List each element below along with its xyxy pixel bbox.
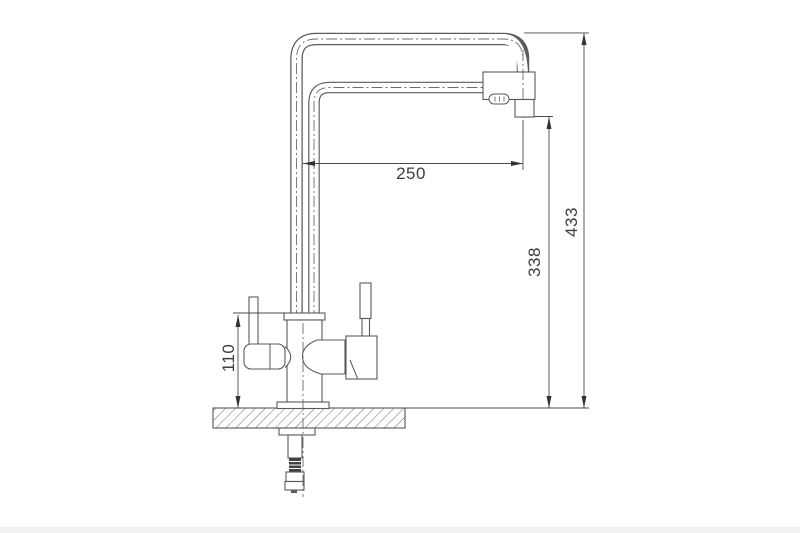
mounting-washer	[279, 428, 315, 435]
countertop-section	[213, 408, 405, 428]
shank-tube	[288, 435, 302, 458]
right-handle-lever	[360, 283, 371, 319]
left-lever-handle	[244, 297, 291, 369]
threaded-section	[289, 458, 301, 472]
right-valve-cone-junction	[302, 340, 345, 374]
spout-outlet-height-dimension-label: 338	[525, 247, 545, 277]
lock-nut	[286, 472, 304, 482]
left-valve-body	[244, 344, 285, 369]
right-handle-stem	[362, 319, 370, 338]
right-valve-body	[346, 336, 377, 379]
drawing-canvas	[0, 0, 800, 533]
shank-tip	[291, 490, 297, 493]
overall-height-dimension-label: 433	[562, 207, 582, 237]
faucet-technical-drawing: 250 433 338 110	[0, 0, 800, 533]
lock-nut-lower	[285, 482, 304, 491]
handle-height-dimension-label: 110	[219, 344, 239, 373]
aerator-outlet	[515, 100, 534, 118]
spray-switch-button	[489, 94, 509, 104]
left-handle-lever	[249, 297, 258, 345]
right-lever-handle	[346, 283, 377, 379]
image-bottom-band	[0, 527, 800, 533]
filtered-water-tube	[314, 88, 486, 323]
spout-reach-dimension-label: 250	[396, 164, 426, 184]
body-top-collar	[284, 313, 325, 320]
threaded-shank-with-nuts	[279, 428, 315, 493]
